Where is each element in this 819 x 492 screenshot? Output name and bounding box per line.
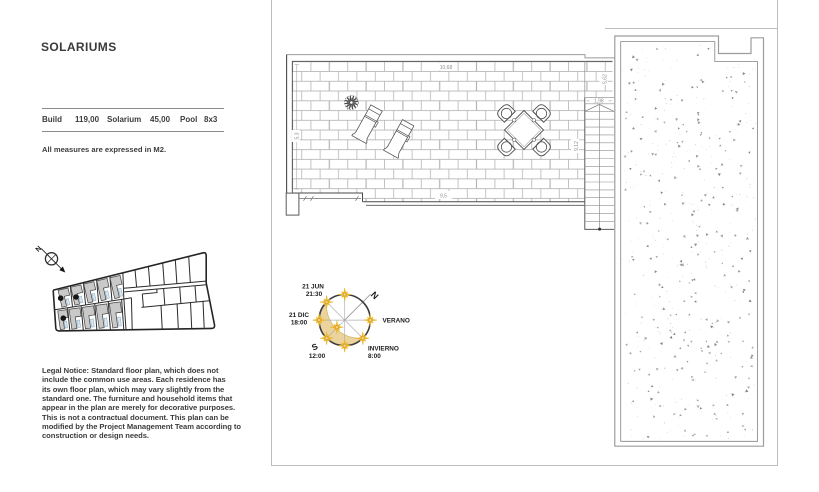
svg-text:9,12: 9,12 [574, 141, 580, 151]
svg-text:N: N [35, 245, 44, 254]
svg-text:S: S [310, 341, 320, 353]
svg-text:INVIERNO: INVIERNO [368, 346, 399, 353]
svg-text:12:00: 12:00 [309, 353, 326, 360]
svg-text:5,3: 5,3 [295, 132, 301, 139]
svg-text:10,68: 10,68 [440, 65, 453, 71]
svg-text:1,98: 1,98 [594, 99, 604, 105]
svg-text:5,62: 5,62 [603, 74, 609, 84]
svg-text:9,5: 9,5 [440, 194, 447, 200]
svg-text:21 DIC: 21 DIC [289, 312, 309, 319]
svg-text:18:00: 18:00 [291, 320, 308, 327]
svg-text:21:30: 21:30 [306, 291, 323, 298]
svg-text:VERANO: VERANO [383, 317, 410, 324]
svg-text:21 JUN: 21 JUN [302, 284, 324, 291]
svg-text:8:00: 8:00 [368, 353, 381, 360]
svg-text:N: N [369, 290, 381, 302]
